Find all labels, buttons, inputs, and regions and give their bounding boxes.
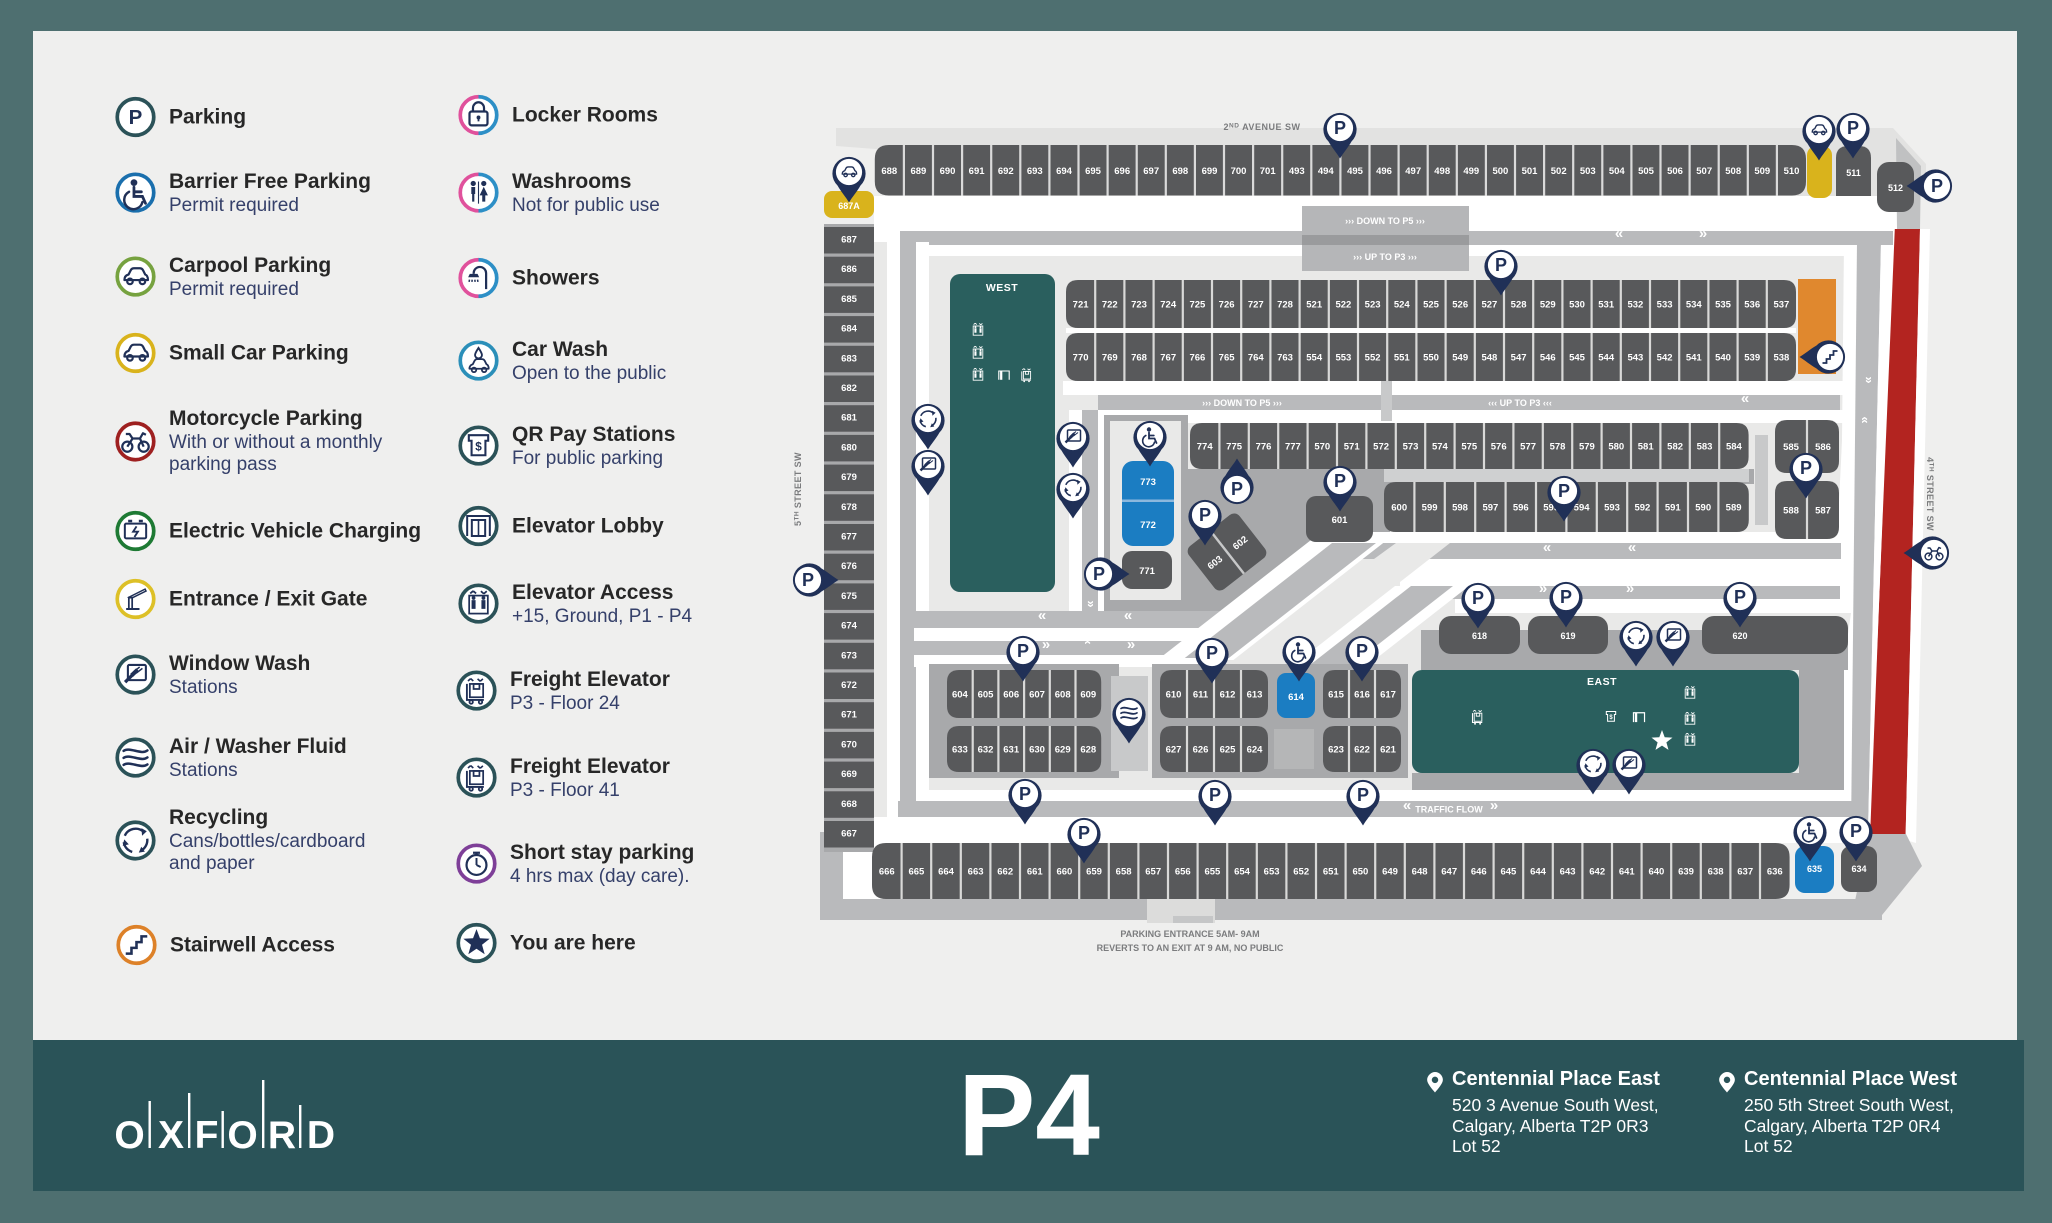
svg-text:P: P xyxy=(1931,176,1943,196)
svg-text:657: 657 xyxy=(1145,867,1161,878)
svg-text:P: P xyxy=(1199,505,1211,525)
svg-text:580: 580 xyxy=(1608,442,1624,453)
svg-text:700: 700 xyxy=(1231,166,1247,177)
svg-text:697: 697 xyxy=(1143,166,1159,177)
svg-text:498: 498 xyxy=(1434,166,1450,177)
svg-text:544: 544 xyxy=(1598,353,1615,364)
svg-text:774: 774 xyxy=(1197,442,1214,453)
svg-text:EAST: EAST xyxy=(1587,676,1617,688)
svg-text:«: « xyxy=(1628,539,1636,556)
svg-text:617: 617 xyxy=(1380,690,1396,701)
svg-text:545: 545 xyxy=(1569,353,1586,364)
svg-text:530: 530 xyxy=(1569,300,1585,311)
svg-text:666: 666 xyxy=(879,867,895,878)
svg-text:641: 641 xyxy=(1619,867,1636,878)
svg-text:609: 609 xyxy=(1080,690,1096,701)
svg-text:693: 693 xyxy=(1027,166,1043,177)
svg-text:507: 507 xyxy=(1696,166,1712,177)
svg-text:525: 525 xyxy=(1423,300,1440,311)
svg-text:687: 687 xyxy=(841,235,857,246)
svg-text:597: 597 xyxy=(1482,503,1498,514)
svg-text:571: 571 xyxy=(1344,442,1361,453)
svg-text:573: 573 xyxy=(1403,442,1419,453)
svg-text:649: 649 xyxy=(1382,867,1398,878)
svg-text:655: 655 xyxy=(1204,867,1221,878)
svg-text:«: « xyxy=(1858,416,1873,423)
svg-text:546: 546 xyxy=(1540,353,1556,364)
svg-text:«: « xyxy=(1403,797,1411,814)
svg-text:678: 678 xyxy=(841,502,857,513)
svg-text:612: 612 xyxy=(1220,690,1236,701)
svg-text:679: 679 xyxy=(841,472,857,483)
svg-text:WEST: WEST xyxy=(986,282,1018,294)
svg-text:504: 504 xyxy=(1609,166,1626,177)
svg-text:529: 529 xyxy=(1540,300,1556,311)
svg-text:»: » xyxy=(1699,225,1707,242)
svg-text:673: 673 xyxy=(841,650,857,661)
svg-text:P: P xyxy=(1334,471,1346,491)
svg-text:661: 661 xyxy=(1027,867,1044,878)
svg-text:608: 608 xyxy=(1055,690,1071,701)
svg-text:644: 644 xyxy=(1530,867,1547,878)
svg-text:551: 551 xyxy=(1394,353,1411,364)
svg-text:626: 626 xyxy=(1193,745,1209,756)
svg-text:763: 763 xyxy=(1277,353,1293,364)
svg-text:765: 765 xyxy=(1219,353,1236,364)
svg-text:576: 576 xyxy=(1491,442,1507,453)
svg-text:506: 506 xyxy=(1667,166,1683,177)
svg-text:614: 614 xyxy=(1288,692,1305,703)
svg-text:598: 598 xyxy=(1452,503,1468,514)
svg-text:639: 639 xyxy=(1678,867,1694,878)
svg-text:769: 769 xyxy=(1102,353,1118,364)
svg-text:«: « xyxy=(1124,607,1132,624)
svg-text:601: 601 xyxy=(1332,515,1349,526)
svg-text:621: 621 xyxy=(1380,745,1397,756)
svg-text:590: 590 xyxy=(1695,503,1711,514)
svg-text:P: P xyxy=(1093,564,1105,584)
svg-text:579: 579 xyxy=(1579,442,1595,453)
svg-text:»: » xyxy=(1626,580,1634,597)
svg-text:634: 634 xyxy=(1851,864,1866,874)
svg-text:681: 681 xyxy=(841,413,858,424)
svg-text:552: 552 xyxy=(1365,353,1381,364)
svg-text:701: 701 xyxy=(1260,166,1277,177)
svg-text:535: 535 xyxy=(1715,300,1732,311)
svg-text:P: P xyxy=(1334,118,1346,138)
svg-text:668: 668 xyxy=(841,799,857,810)
svg-text:549: 549 xyxy=(1452,353,1468,364)
svg-text:REVERTS TO AN EXIT AT 9 AM, NO: REVERTS TO AN EXIT AT 9 AM, NO PUBLIC xyxy=(1097,943,1284,953)
svg-text:586: 586 xyxy=(1815,442,1831,453)
svg-text:583: 583 xyxy=(1697,442,1713,453)
svg-text:722: 722 xyxy=(1102,300,1118,311)
svg-text:496: 496 xyxy=(1376,166,1392,177)
svg-text:663: 663 xyxy=(968,867,984,878)
svg-text:696: 696 xyxy=(1114,166,1130,177)
svg-text:521: 521 xyxy=(1306,300,1323,311)
svg-text:509: 509 xyxy=(1754,166,1770,177)
svg-text:694: 694 xyxy=(1056,166,1073,177)
svg-text:502: 502 xyxy=(1551,166,1567,177)
svg-text:616: 616 xyxy=(1354,690,1370,701)
svg-text:690: 690 xyxy=(940,166,956,177)
svg-text:726: 726 xyxy=(1219,300,1235,311)
svg-text:777: 777 xyxy=(1285,442,1301,453)
svg-text:773: 773 xyxy=(1140,477,1156,488)
svg-text:539: 539 xyxy=(1744,353,1760,364)
svg-text:591: 591 xyxy=(1665,503,1682,514)
svg-text:536: 536 xyxy=(1744,300,1760,311)
svg-text:637: 637 xyxy=(1737,867,1753,878)
svg-text:499: 499 xyxy=(1463,166,1479,177)
svg-text:646: 646 xyxy=(1471,867,1487,878)
svg-text:«: « xyxy=(1543,539,1551,556)
svg-text:540: 540 xyxy=(1715,353,1731,364)
svg-text:662: 662 xyxy=(997,867,1013,878)
svg-text:688: 688 xyxy=(881,166,897,177)
svg-text:«: « xyxy=(1082,600,1097,607)
svg-text:P: P xyxy=(1495,255,1507,275)
svg-text:505: 505 xyxy=(1638,166,1655,177)
svg-text:770: 770 xyxy=(1073,353,1089,364)
svg-text:‹‹‹ UP TO P3 ‹‹‹: ‹‹‹ UP TO P3 ‹‹‹ xyxy=(1488,398,1552,408)
svg-text:593: 593 xyxy=(1604,503,1620,514)
svg-text:654: 654 xyxy=(1234,867,1251,878)
svg-text:584: 584 xyxy=(1726,442,1743,453)
svg-text:542: 542 xyxy=(1657,353,1673,364)
svg-text:547: 547 xyxy=(1511,353,1527,364)
svg-text:P: P xyxy=(1078,823,1090,843)
svg-text:728: 728 xyxy=(1277,300,1293,311)
svg-text:527: 527 xyxy=(1481,300,1497,311)
svg-text:P: P xyxy=(1017,641,1029,661)
svg-text:P: P xyxy=(129,106,143,129)
svg-text:665: 665 xyxy=(908,867,925,878)
svg-text:PARKING ENTRANCE 5AM- 9AM: PARKING ENTRANCE 5AM- 9AM xyxy=(1120,929,1259,939)
svg-text:494: 494 xyxy=(1318,166,1335,177)
svg-text:635: 635 xyxy=(1807,864,1822,874)
svg-text:523: 523 xyxy=(1365,300,1381,311)
svg-text:623: 623 xyxy=(1328,745,1344,756)
svg-text:P: P xyxy=(1560,587,1572,607)
svg-text:«: « xyxy=(1860,376,1875,383)
svg-text:695: 695 xyxy=(1085,166,1102,177)
svg-text:674: 674 xyxy=(841,621,858,632)
svg-text:497: 497 xyxy=(1405,166,1421,177)
svg-text:669: 669 xyxy=(841,769,857,780)
svg-text:691: 691 xyxy=(969,166,986,177)
svg-text:628: 628 xyxy=(1080,745,1096,756)
svg-text:P: P xyxy=(1850,821,1862,841)
svg-text:640: 640 xyxy=(1648,867,1664,878)
svg-text:526: 526 xyxy=(1452,300,1468,311)
svg-text:493: 493 xyxy=(1289,166,1305,177)
svg-text:508: 508 xyxy=(1725,166,1741,177)
svg-text:775: 775 xyxy=(1226,442,1243,453)
svg-text:P: P xyxy=(1357,785,1369,805)
svg-text:577: 577 xyxy=(1520,442,1536,453)
svg-text:522: 522 xyxy=(1335,300,1351,311)
svg-text:528: 528 xyxy=(1511,300,1527,311)
svg-text:570: 570 xyxy=(1314,442,1330,453)
svg-text:512: 512 xyxy=(1888,183,1903,193)
svg-text:659: 659 xyxy=(1086,867,1102,878)
svg-text:548: 548 xyxy=(1481,353,1497,364)
svg-text:725: 725 xyxy=(1189,300,1206,311)
svg-text:534: 534 xyxy=(1686,300,1703,311)
svg-text:767: 767 xyxy=(1160,353,1176,364)
svg-text:$: $ xyxy=(475,441,482,454)
svg-text:650: 650 xyxy=(1352,867,1368,878)
svg-text:658: 658 xyxy=(1116,867,1132,878)
svg-text:768: 768 xyxy=(1131,353,1147,364)
svg-text:P: P xyxy=(1231,479,1243,499)
svg-text:594: 594 xyxy=(1574,503,1591,514)
svg-text:604: 604 xyxy=(952,690,969,701)
svg-text:638: 638 xyxy=(1708,867,1724,878)
svg-text:721: 721 xyxy=(1073,300,1090,311)
svg-text:619: 619 xyxy=(1560,631,1575,641)
svg-text:554: 554 xyxy=(1306,353,1323,364)
svg-text:724: 724 xyxy=(1160,300,1177,311)
svg-text:613: 613 xyxy=(1247,690,1263,701)
svg-text:P: P xyxy=(1019,784,1031,804)
svg-text:578: 578 xyxy=(1550,442,1566,453)
svg-text:680: 680 xyxy=(841,442,857,453)
svg-text:503: 503 xyxy=(1580,166,1596,177)
svg-text:622: 622 xyxy=(1354,745,1370,756)
svg-text:5TH STREET SW: 5TH STREET SW xyxy=(793,452,803,526)
svg-text:670: 670 xyxy=(841,739,857,750)
svg-text:P: P xyxy=(1206,643,1218,663)
svg-text:667: 667 xyxy=(841,829,857,840)
svg-text:675: 675 xyxy=(841,591,858,602)
svg-text:582: 582 xyxy=(1667,442,1683,453)
svg-text:››› DOWN TO P5 ›››: ››› DOWN TO P5 ››› xyxy=(1202,398,1282,408)
svg-text:653: 653 xyxy=(1264,867,1280,878)
svg-text:»: » xyxy=(1490,797,1498,814)
svg-text:677: 677 xyxy=(841,532,857,543)
svg-text:P: P xyxy=(1209,785,1221,805)
svg-text:652: 652 xyxy=(1293,867,1309,878)
svg-text:553: 553 xyxy=(1335,353,1351,364)
svg-text:533: 533 xyxy=(1657,300,1673,311)
svg-text:»: » xyxy=(1042,636,1050,653)
svg-text:495: 495 xyxy=(1347,166,1364,177)
svg-text:605: 605 xyxy=(978,690,995,701)
svg-text:P: P xyxy=(1847,118,1859,138)
svg-text:524: 524 xyxy=(1394,300,1411,311)
svg-text:589: 589 xyxy=(1726,503,1742,514)
svg-text:671: 671 xyxy=(841,710,858,721)
svg-text:648: 648 xyxy=(1412,867,1428,878)
svg-text:764: 764 xyxy=(1248,353,1265,364)
svg-text:532: 532 xyxy=(1627,300,1643,311)
svg-text:776: 776 xyxy=(1256,442,1272,453)
svg-text:642: 642 xyxy=(1589,867,1605,878)
svg-text:531: 531 xyxy=(1598,300,1615,311)
svg-text:585: 585 xyxy=(1783,442,1800,453)
svg-text:P: P xyxy=(802,570,814,590)
svg-text:500: 500 xyxy=(1492,166,1508,177)
svg-text:615: 615 xyxy=(1328,690,1345,701)
svg-text:587: 587 xyxy=(1815,506,1831,517)
svg-text:599: 599 xyxy=(1422,503,1438,514)
svg-text:664: 664 xyxy=(938,867,955,878)
svg-text:727: 727 xyxy=(1248,300,1264,311)
svg-text:618: 618 xyxy=(1472,631,1487,641)
svg-text:610: 610 xyxy=(1166,690,1182,701)
svg-text:651: 651 xyxy=(1323,867,1340,878)
svg-text:574: 574 xyxy=(1432,442,1449,453)
svg-text:»: » xyxy=(1127,636,1135,653)
svg-text:P: P xyxy=(1734,587,1746,607)
svg-text:676: 676 xyxy=(841,561,857,572)
svg-text:629: 629 xyxy=(1055,745,1071,756)
svg-text:600: 600 xyxy=(1391,503,1407,514)
svg-text:636: 636 xyxy=(1767,867,1783,878)
svg-text:660: 660 xyxy=(1056,867,1072,878)
svg-text:620: 620 xyxy=(1732,631,1747,641)
svg-text:P: P xyxy=(1356,641,1368,661)
svg-text:611: 611 xyxy=(1193,690,1209,701)
svg-text:4TH STREET SW: 4TH STREET SW xyxy=(1925,457,1935,531)
svg-text:645: 645 xyxy=(1500,867,1517,878)
svg-text:«: « xyxy=(1615,225,1623,242)
svg-text:510: 510 xyxy=(1784,166,1800,177)
svg-text:630: 630 xyxy=(1029,745,1045,756)
svg-text:656: 656 xyxy=(1175,867,1191,878)
svg-text:699: 699 xyxy=(1202,166,1218,177)
svg-text:772: 772 xyxy=(1140,520,1156,531)
svg-text:«: « xyxy=(1081,637,1096,644)
svg-text:511: 511 xyxy=(1846,168,1861,178)
svg-text:686: 686 xyxy=(841,264,857,275)
svg-text:689: 689 xyxy=(910,166,926,177)
svg-text:P: P xyxy=(1472,588,1484,608)
svg-text:575: 575 xyxy=(1461,442,1478,453)
svg-text:631: 631 xyxy=(1003,745,1020,756)
svg-text:537: 537 xyxy=(1773,300,1789,311)
svg-text:625: 625 xyxy=(1220,745,1237,756)
svg-text:627: 627 xyxy=(1166,745,1182,756)
svg-text:«: « xyxy=(1038,607,1046,624)
svg-text:723: 723 xyxy=(1131,300,1147,311)
svg-text:››› DOWN TO P5 ›››: ››› DOWN TO P5 ››› xyxy=(1345,216,1425,226)
svg-text:P: P xyxy=(1558,481,1570,501)
svg-text:»: » xyxy=(1539,580,1547,597)
svg-text:541: 541 xyxy=(1686,353,1703,364)
svg-text:685: 685 xyxy=(841,294,858,305)
svg-text:684: 684 xyxy=(841,324,858,335)
svg-text:581: 581 xyxy=(1638,442,1655,453)
svg-text:647: 647 xyxy=(1441,867,1457,878)
svg-text:572: 572 xyxy=(1373,442,1389,453)
svg-text:672: 672 xyxy=(841,680,857,691)
svg-text:698: 698 xyxy=(1172,166,1188,177)
svg-text:624: 624 xyxy=(1247,745,1264,756)
svg-text:592: 592 xyxy=(1634,503,1650,514)
svg-text:692: 692 xyxy=(998,166,1014,177)
svg-text:TRAFFIC FLOW: TRAFFIC FLOW xyxy=(1415,805,1483,815)
svg-text:543: 543 xyxy=(1627,353,1643,364)
svg-text:682: 682 xyxy=(841,383,857,394)
svg-text:«: « xyxy=(1741,390,1749,407)
svg-text:538: 538 xyxy=(1773,353,1789,364)
svg-text:550: 550 xyxy=(1423,353,1439,364)
svg-text:588: 588 xyxy=(1783,506,1799,517)
svg-text:606: 606 xyxy=(1003,690,1019,701)
svg-text:501: 501 xyxy=(1522,166,1539,177)
svg-text:››› UP TO P3 ›››: ››› UP TO P3 ››› xyxy=(1353,252,1417,262)
svg-text:687A: 687A xyxy=(838,201,860,211)
svg-text:766: 766 xyxy=(1189,353,1205,364)
svg-text:607: 607 xyxy=(1029,690,1045,701)
svg-text:633: 633 xyxy=(952,745,968,756)
svg-text:632: 632 xyxy=(978,745,994,756)
svg-text:596: 596 xyxy=(1513,503,1529,514)
svg-text:P: P xyxy=(1800,458,1812,478)
svg-text:643: 643 xyxy=(1560,867,1576,878)
svg-text:771: 771 xyxy=(1139,566,1156,577)
svg-text:683: 683 xyxy=(841,353,857,364)
